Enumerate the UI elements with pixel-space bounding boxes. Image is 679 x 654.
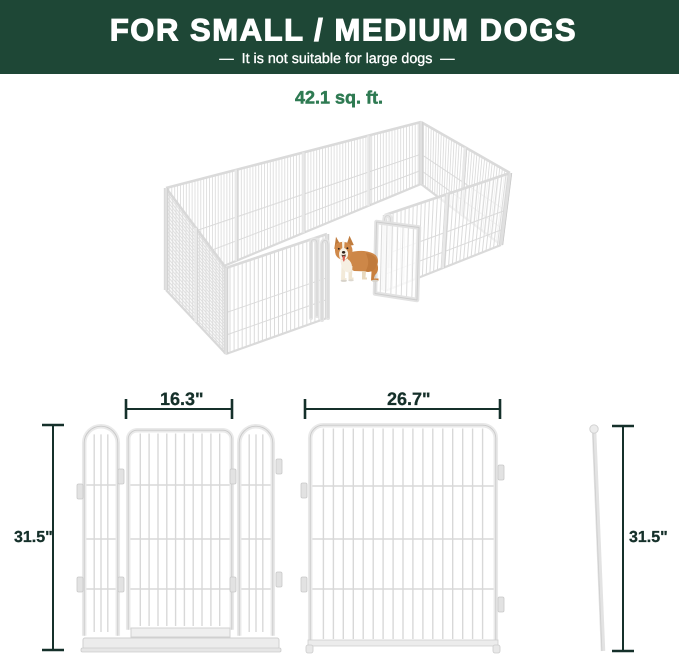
- svg-text:31.5": 31.5": [14, 529, 53, 546]
- svg-text:26.7": 26.7": [387, 389, 431, 409]
- svg-text:16.3": 16.3": [160, 389, 204, 409]
- svg-text:31.5": 31.5": [629, 529, 668, 546]
